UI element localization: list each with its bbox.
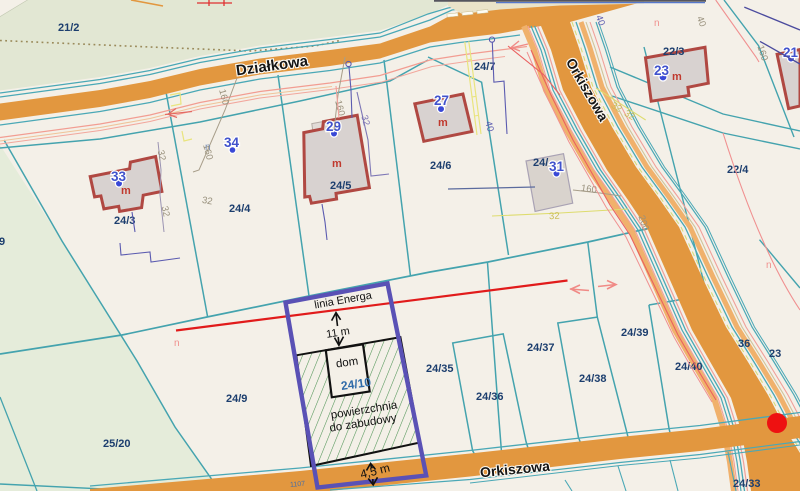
svg-text:m: m [438, 117, 448, 129]
svg-text:32: 32 [155, 149, 168, 162]
svg-text:24/9: 24/9 [226, 393, 247, 405]
svg-text:m: m [332, 158, 342, 170]
svg-text:9: 9 [0, 236, 5, 248]
svg-text:n: n [766, 260, 772, 271]
svg-text:24/6: 24/6 [430, 160, 451, 172]
svg-text:n: n [205, 142, 211, 153]
svg-text:24/4: 24/4 [229, 203, 251, 215]
svg-text:32: 32 [201, 195, 213, 208]
svg-text:31: 31 [549, 159, 565, 174]
svg-text:24/36: 24/36 [476, 391, 504, 403]
svg-text:24/: 24/ [533, 157, 548, 169]
svg-text:n: n [654, 18, 660, 29]
svg-text:23: 23 [769, 348, 781, 360]
svg-text:36: 36 [738, 338, 750, 350]
svg-text:25/20: 25/20 [103, 438, 131, 450]
svg-text:24/33: 24/33 [733, 478, 761, 490]
svg-text:24/39: 24/39 [621, 327, 649, 339]
svg-text:34: 34 [224, 135, 240, 150]
svg-text:27: 27 [434, 93, 449, 108]
svg-text:24/38: 24/38 [579, 373, 607, 385]
svg-text:32: 32 [159, 205, 172, 218]
svg-text:21: 21 [783, 45, 799, 60]
svg-text:n: n [174, 338, 180, 349]
svg-text:33: 33 [111, 169, 127, 184]
svg-text:m: m [672, 71, 682, 83]
svg-text:22/4: 22/4 [727, 164, 749, 176]
svg-text:1107: 1107 [290, 481, 306, 489]
svg-text:24/37: 24/37 [527, 342, 555, 354]
svg-text:21/2: 21/2 [58, 22, 79, 34]
svg-text:24/35: 24/35 [426, 363, 454, 375]
svg-text:24/7: 24/7 [474, 61, 495, 73]
svg-text:29: 29 [326, 119, 341, 134]
svg-text:160: 160 [580, 183, 597, 196]
svg-text:24/5: 24/5 [330, 180, 351, 192]
svg-text:32: 32 [549, 211, 560, 223]
svg-text:23: 23 [654, 63, 670, 78]
svg-text:m: m [121, 185, 131, 197]
svg-text:22/3: 22/3 [663, 46, 684, 58]
